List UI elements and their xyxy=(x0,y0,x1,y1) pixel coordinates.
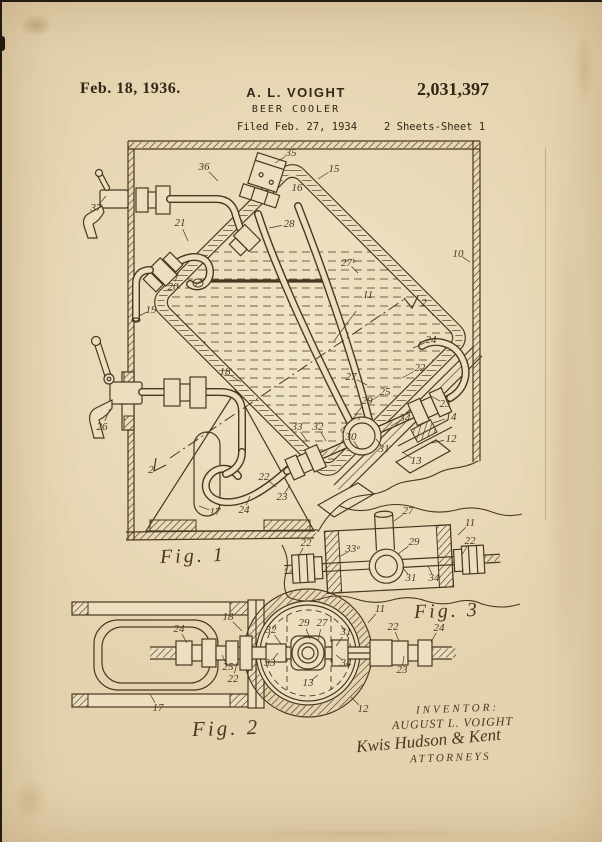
ref-numeral: 17 xyxy=(153,702,165,714)
ref-numeral: 36 xyxy=(198,161,211,173)
ref-numeral: 32 xyxy=(265,624,278,636)
ref-numeral: 23 xyxy=(277,491,289,503)
ref-numeral: 29 xyxy=(299,617,311,629)
ref-numeral: 27 xyxy=(317,617,329,629)
ref-numeral: 12 xyxy=(446,433,458,445)
ref-numeral: 24 xyxy=(239,504,251,516)
ref-numeral: 12 xyxy=(358,703,370,715)
ref-numeral: 11 xyxy=(363,289,373,301)
ref-numeral: 22 xyxy=(415,362,427,374)
ref-numeral: 21 xyxy=(175,217,186,229)
ref-numeral: 34 xyxy=(340,657,353,669)
fig2-caption: Fig. 2 xyxy=(192,715,261,742)
ref-numeral: 2 xyxy=(421,297,427,309)
ref-numeral: 33ᵃ xyxy=(344,543,360,555)
ref-numeral: 34 xyxy=(428,572,441,584)
ref-numeral: 14 xyxy=(446,411,458,423)
ref-numeral: 22 xyxy=(228,673,240,685)
ref-numeral: 22 xyxy=(388,621,400,633)
ref-numeral: 35 xyxy=(285,147,298,159)
fig1-caption: Fig. 1 xyxy=(160,544,227,569)
ref-numeral: 27 xyxy=(346,371,358,383)
ref-numeral: 24 xyxy=(174,623,186,635)
ref-numeral: 23 xyxy=(397,664,409,676)
fig2-drawing xyxy=(72,589,456,717)
ref-numeral: 18 xyxy=(223,611,235,623)
ref-numeral: 15 xyxy=(329,163,341,175)
ref-numeral: 19 xyxy=(146,304,158,316)
ref-numeral: 33 xyxy=(291,421,304,433)
ref-numeral: 31 xyxy=(378,443,390,455)
ref-numeral: 25 xyxy=(380,386,392,398)
ref-numeral: 11 xyxy=(465,517,475,529)
ref-numeral: 24 xyxy=(426,334,438,346)
ref-numeral: 23 xyxy=(440,398,452,410)
ref-numeral: 28 xyxy=(284,218,296,230)
ref-numeral: 37 xyxy=(90,202,103,214)
ref-numeral: 31 xyxy=(405,572,417,584)
ref-numeral: 13 xyxy=(411,455,423,467)
ref-numeral: 27 xyxy=(403,505,415,517)
ref-numeral: 25 xyxy=(223,661,235,673)
ref-numeral: 29 xyxy=(409,536,421,548)
ref-numeral: 31 xyxy=(340,626,352,638)
ref-numeral: 22 xyxy=(465,535,477,547)
ref-numeral: 22 xyxy=(301,537,313,549)
ref-numeral: 17 xyxy=(210,506,222,518)
ref-numeral: 22 xyxy=(259,471,271,483)
ref-numeral: 32 xyxy=(312,421,325,433)
ref-numeral: 26 xyxy=(97,421,109,433)
patent-page: Feb. 18, 1936. A. L. VOIGHT 2,031,397 BE… xyxy=(0,0,602,842)
ref-numeral: 13 xyxy=(303,677,315,689)
ref-numeral: 10 xyxy=(453,248,465,260)
ref-numeral: 2 xyxy=(148,464,154,476)
ref-numeral: 30 xyxy=(345,431,358,443)
ref-numeral: 29 xyxy=(362,395,374,407)
ref-numeral: 11 xyxy=(375,603,385,615)
ref-numeral: 34 xyxy=(399,412,412,424)
fig3-caption: Fig. 3 xyxy=(414,599,481,624)
ref-numeral: 20 xyxy=(168,281,180,293)
ref-numeral: 24 xyxy=(434,622,446,634)
ref-numeral: 27ᵇ xyxy=(341,257,356,269)
ref-numeral: 18 xyxy=(220,366,232,378)
ref-numeral: 16 xyxy=(292,182,304,194)
ref-numeral: 33 xyxy=(264,657,277,669)
